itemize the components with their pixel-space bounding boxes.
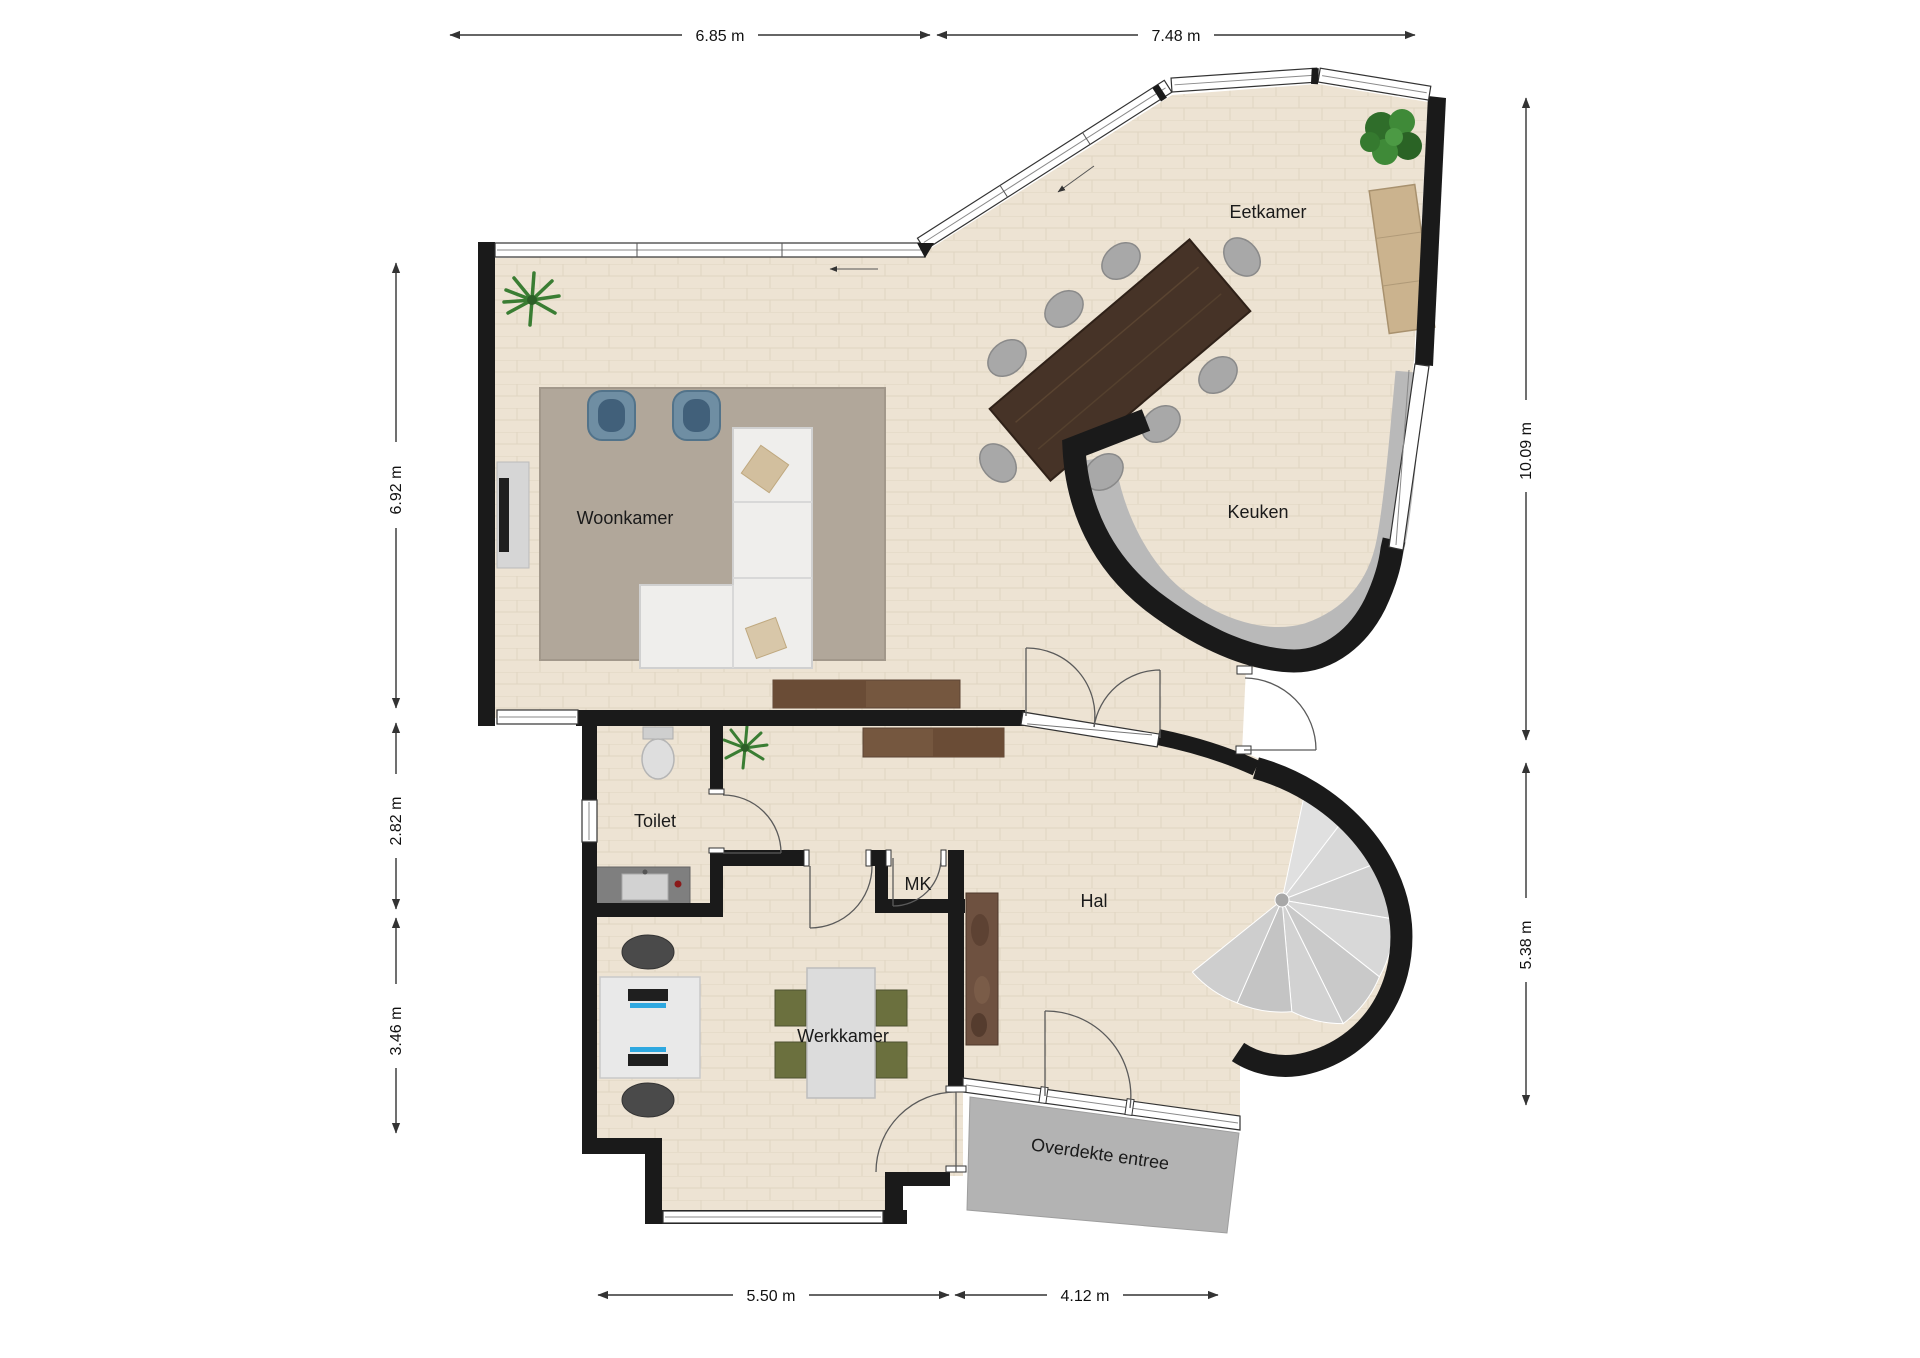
room-label-mk: MK — [905, 874, 932, 894]
hall-sideboard — [863, 728, 1004, 757]
dim-right-upper: 10.09 m — [1518, 422, 1535, 480]
window-band — [497, 710, 578, 724]
tv-cabinet — [497, 462, 529, 568]
room-label-keuken: Keuken — [1227, 502, 1288, 522]
work-chair — [876, 1042, 907, 1078]
monitor — [628, 1054, 668, 1066]
work-chair — [876, 990, 907, 1026]
wall — [478, 242, 495, 726]
sideboard — [773, 680, 960, 708]
window-band — [582, 800, 597, 842]
room-label-hal: Hal — [1080, 891, 1107, 911]
window-band — [495, 243, 925, 257]
dim-bottom-left: 5.50 m — [747, 1288, 796, 1305]
monitor — [628, 989, 668, 1001]
floorplan: Woonkamer Eetkamer Keuken Toilet MK Hal … — [0, 0, 1920, 1358]
armchair — [673, 391, 720, 440]
tv — [499, 478, 509, 552]
office-chair — [622, 935, 674, 969]
washbasin — [593, 867, 690, 907]
dim-left-middle: 2.82 m — [388, 797, 405, 846]
tall-cabinet — [966, 893, 998, 1045]
armchair — [588, 391, 635, 440]
window-band — [663, 1211, 883, 1223]
work-chair — [775, 990, 806, 1026]
work-chair — [775, 1042, 806, 1078]
dim-right-lower: 5.38 m — [1518, 921, 1535, 970]
dim-left-lower: 3.46 m — [388, 1007, 405, 1056]
room-label-eetkamer: Eetkamer — [1229, 202, 1306, 222]
toilet-fixture — [642, 727, 674, 779]
dim-top-left: 6.85 m — [696, 28, 745, 45]
floorplan-page: Woonkamer Eetkamer Keuken Toilet MK Hal … — [0, 0, 1920, 1358]
dim-left-upper: 6.92 m — [388, 466, 405, 515]
room-label-woonkamer: Woonkamer — [577, 508, 674, 528]
dim-bottom-right: 4.12 m — [1061, 1288, 1110, 1305]
room-label-werkkamer: Werkkamer — [797, 1026, 889, 1046]
room-label-toilet: Toilet — [634, 811, 676, 831]
dim-top-right: 7.48 m — [1152, 28, 1201, 45]
office-chair — [622, 1083, 674, 1117]
